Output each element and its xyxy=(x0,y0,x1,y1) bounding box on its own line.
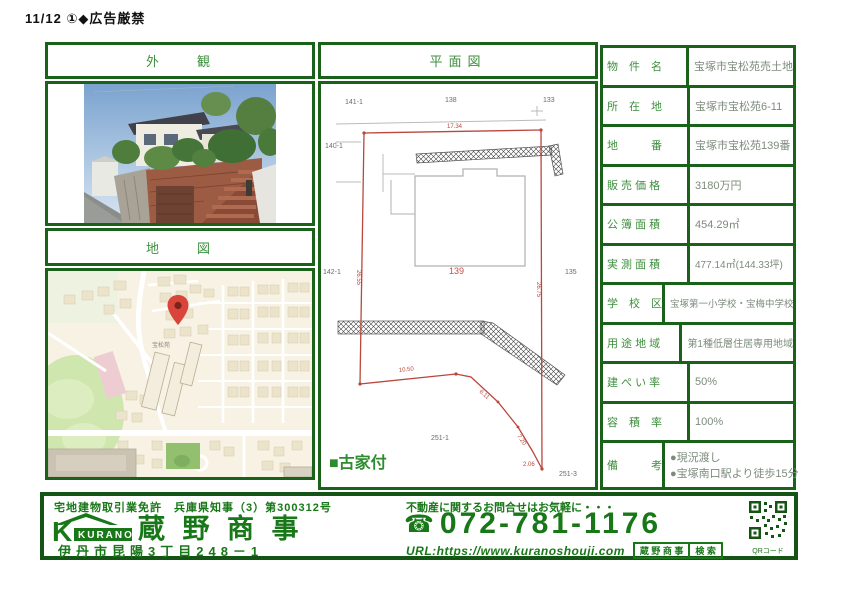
table-row: 学 校 区 宝塚第一小学校・宝梅中学校 xyxy=(603,285,793,325)
row-label: 建 ぺ い 率 xyxy=(603,364,690,401)
dim-label: 26.75 xyxy=(535,282,541,298)
search-suggestion-box: 蔵 野 商 事 検 索 xyxy=(633,542,723,559)
dim-label: 7.20 xyxy=(515,434,527,448)
phone-number: 072-781-1176 xyxy=(440,509,661,539)
map-section-header: 地 図 xyxy=(45,228,315,266)
exterior-photo xyxy=(84,84,276,223)
remark-line: ●現況渡し xyxy=(670,449,721,465)
site-plan-frame: 141-1 138 133 140-1 142-1 135 251-1 251-… xyxy=(318,81,598,490)
dim-label: 26.55 xyxy=(355,270,361,286)
lot-label: 133 xyxy=(543,97,555,104)
plan-header-label: 平面図 xyxy=(429,51,486,70)
subject-lot-label: 139 xyxy=(449,266,464,276)
row-value: 3180万円 xyxy=(690,167,793,204)
table-row: 公 簿 面 積 454.29㎡ xyxy=(603,206,793,246)
lot-label: 138 xyxy=(445,97,457,104)
old-house-note: ■古家付 xyxy=(329,449,387,473)
flyer-page: 11/12 ①◆広告厳禁 外 観 xyxy=(0,0,842,595)
lot-label: 142-1 xyxy=(323,269,341,276)
location-map: 宝松苑 xyxy=(48,271,312,477)
kurano-logo-icon: K KURANO xyxy=(52,511,138,543)
row-label: 所 在 地 xyxy=(603,88,690,125)
lot-label: 141-1 xyxy=(345,99,363,106)
table-row: 用 途 地 域 第1種低層住居専用地域 xyxy=(603,325,793,365)
row-value: 宝塚市宝松苑売土地 xyxy=(689,48,793,85)
lot-label: 135 xyxy=(565,269,577,276)
table-row: 容 積 率 100% xyxy=(603,404,793,444)
table-row: 建 ぺ い 率 50% xyxy=(603,364,793,404)
row-value: 宝塚市宝松苑139番 xyxy=(690,127,793,164)
page-note: 11/12 ①◆広告厳禁 xyxy=(25,8,145,27)
property-details-table: 物 件 名 宝塚市宝松苑売土地 所 在 地 宝塚市宝松苑6-11 地 番 宝塚市… xyxy=(600,45,796,490)
site-plan-drawing: 141-1 138 133 140-1 142-1 135 251-1 251-… xyxy=(321,84,595,487)
company-name: 蔵 野 商 事 xyxy=(138,516,304,543)
exterior-photo-frame xyxy=(45,81,315,226)
company-banner: 宅地建物取引業免許 兵庫県知事（3）第300312号 K KURANO 蔵 野 … xyxy=(40,492,798,560)
row-label: 容 積 率 xyxy=(603,404,690,441)
phone-icon: ☎ xyxy=(404,510,434,539)
url-row: URL:https://www.kuranoshouji.com 蔵 野 商 事… xyxy=(406,542,723,559)
row-value: 宝塚市宝松苑6-11 xyxy=(690,88,793,125)
table-row: 所 在 地 宝塚市宝松苑6-11 xyxy=(603,88,793,128)
row-label: 公 簿 面 積 xyxy=(603,206,690,243)
row-value: 50% xyxy=(690,364,793,401)
company-logo-row: K KURANO 蔵 野 商 事 xyxy=(52,511,304,543)
svg-text:K: K xyxy=(52,516,72,543)
lot-label: 140-1 xyxy=(325,143,343,150)
table-row: 物 件 名 宝塚市宝松苑売土地 xyxy=(603,48,793,88)
row-label: 用 途 地 域 xyxy=(603,325,682,362)
phone-row: ☎ 072-781-1176 xyxy=(404,509,661,539)
table-row: 販 売 価 格 3180万円 xyxy=(603,167,793,207)
website-url: URL:https://www.kuranoshouji.com xyxy=(406,544,625,558)
plan-section-header: 平面図 xyxy=(318,42,598,79)
table-row-remarks: 備 考 ●現況渡し ●宝塚南口駅より徒歩15分 xyxy=(603,443,793,487)
remark-line: ●宝塚南口駅より徒歩15分 xyxy=(670,465,799,481)
dim-label: 10.50 xyxy=(399,366,415,374)
lot-label: 251-3 xyxy=(559,471,577,478)
row-label: 販 売 価 格 xyxy=(603,167,690,204)
row-label: 地 番 xyxy=(603,127,690,164)
lot-label: 251-1 xyxy=(431,435,449,442)
row-value: 100% xyxy=(690,404,793,441)
table-row: 実 測 面 積 477.14㎡(144.33坪) xyxy=(603,246,793,286)
row-value: 第1種低層住居専用地域 xyxy=(682,325,793,362)
search-button-label: 検 索 xyxy=(688,544,721,557)
dim-label: 2.06 xyxy=(523,462,535,468)
kurano-logo-text: KURANO xyxy=(78,530,134,541)
exterior-header-label: 外 観 xyxy=(146,51,214,70)
row-value: 477.14㎡(144.33坪) xyxy=(690,246,793,283)
dim-label: 6.11 xyxy=(478,389,491,401)
qr-block: QRコード xyxy=(746,500,790,556)
row-value: 454.29㎡ xyxy=(690,206,793,243)
dim-label: 17.34 xyxy=(447,124,463,130)
map-header-label: 地 図 xyxy=(146,238,214,257)
qr-caption: QRコード xyxy=(746,546,790,556)
qr-code-icon xyxy=(748,500,788,540)
row-value: 宝塚第一小学校・宝梅中学校 xyxy=(665,285,794,322)
row-label: 実 測 面 積 xyxy=(603,246,690,283)
row-label: 学 校 区 xyxy=(603,285,665,322)
row-label: 備 考 xyxy=(603,443,665,487)
company-address: 伊丹市昆陽3丁目248－1 xyxy=(58,541,263,560)
map-area-label: 宝松苑 xyxy=(152,341,170,349)
search-brand: 蔵 野 商 事 xyxy=(635,544,689,557)
row-label: 物 件 名 xyxy=(603,48,689,85)
table-row: 地 番 宝塚市宝松苑139番 xyxy=(603,127,793,167)
exterior-section-header: 外 観 xyxy=(45,42,315,79)
row-value-remarks: ●現況渡し ●宝塚南口駅より徒歩15分 xyxy=(665,443,799,487)
location-map-frame: 宝松苑 xyxy=(45,268,315,480)
